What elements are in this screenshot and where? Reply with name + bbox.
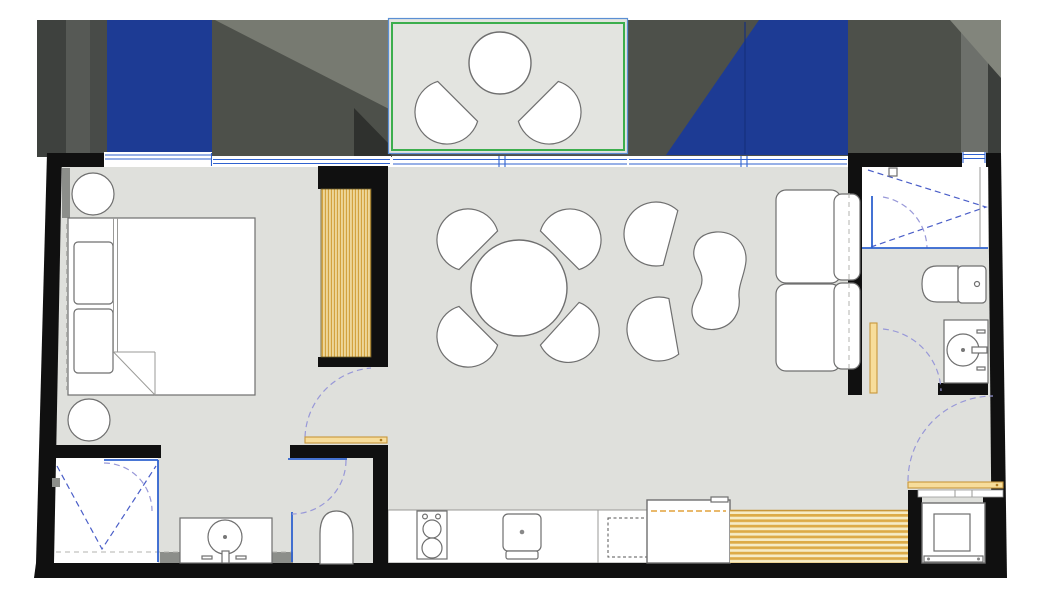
bath2-vanity[interactable]	[944, 320, 988, 383]
double-bed[interactable]	[67, 218, 256, 395]
kitchen-sink[interactable]	[503, 514, 541, 559]
dining-table	[471, 240, 567, 336]
nightstand-top[interactable]	[72, 173, 114, 215]
refrigerator[interactable]	[647, 497, 730, 563]
ensuite-vanity[interactable]	[180, 518, 272, 563]
terrace-table[interactable]	[469, 32, 531, 94]
wardrobe-louvers[interactable]	[321, 189, 371, 357]
shower-floor-ensuite	[53, 458, 158, 564]
nightstand-bottom[interactable]	[68, 399, 110, 441]
slatted-bench[interactable]	[730, 510, 908, 563]
shower-mixer-icon	[889, 168, 897, 176]
cooktop[interactable]	[417, 511, 447, 559]
bath2-toilet[interactable]	[922, 266, 986, 303]
ensuite-toilet[interactable]	[320, 511, 353, 564]
shower-valve-icon	[52, 478, 60, 487]
floor-plan	[0, 0, 1044, 601]
door-threshold	[918, 490, 1003, 497]
washing-machine[interactable]	[922, 503, 985, 563]
terrace	[388, 18, 628, 154]
sofa[interactable]	[776, 190, 860, 371]
bathroom-window	[962, 152, 986, 163]
floor-plan-canvas	[0, 0, 1044, 601]
awning-left	[107, 20, 212, 155]
